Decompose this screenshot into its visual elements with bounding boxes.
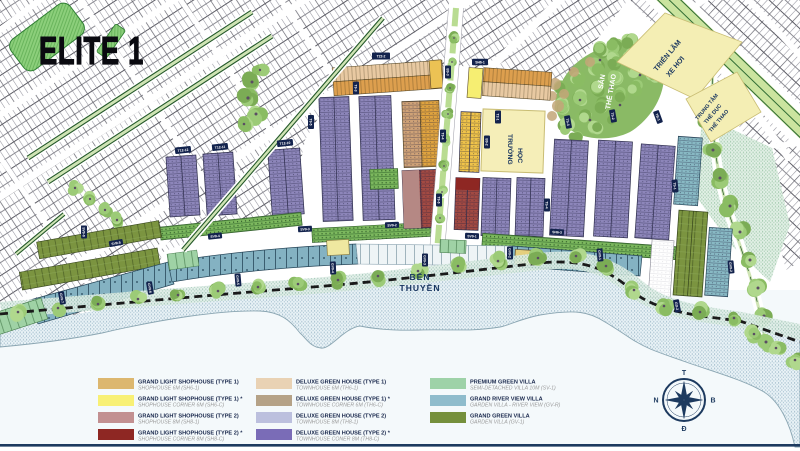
svg-text:GARDEN VILLA (GV-1): GARDEN VILLA (GV-1)	[470, 420, 525, 426]
svg-text:SEMI-DETACHED VILLA 10M (SV-1): SEMI-DETACHED VILLA 10M (SV-1)	[470, 386, 556, 392]
svg-text:SH6-3: SH6-3	[552, 230, 562, 235]
svg-text:TOWNHOUSE 8M (TH8-1): TOWNHOUSE 8M (TH8-1)	[296, 420, 358, 426]
svg-text:GV9-4: GV9-4	[330, 263, 334, 273]
svg-text:Đ: Đ	[681, 426, 686, 433]
svg-text:ELITE 1: ELITE 1	[39, 30, 144, 73]
svg-text:GARDEN VILLA - RIVER VIEW (GV-: GARDEN VILLA - RIVER VIEW (GV-R)	[470, 403, 561, 409]
svg-text:TOWNHOUSE 6M (TH6-1): TOWNHOUSE 6M (TH6-1)	[296, 386, 358, 392]
svg-text:N: N	[653, 398, 658, 405]
svg-text:T9-6: T9-6	[437, 197, 441, 204]
svg-text:SHOPHOUSE CORNER 6M (SH6-C): SHOPHOUSE CORNER 6M (SH6-C)	[138, 403, 224, 409]
svg-text:BẾN: BẾN	[410, 272, 431, 282]
svg-text:T9-4: T9-4	[441, 133, 445, 140]
svg-text:B: B	[710, 398, 715, 405]
svg-text:THUYỀN: THUYỀN	[400, 283, 441, 293]
svg-text:SHOPHOUSE 6M (SH6-1): SHOPHOUSE 6M (SH6-1)	[138, 386, 200, 392]
svg-text:TS-1: TS-1	[672, 182, 677, 190]
svg-text:GV9-3: GV9-3	[423, 255, 427, 265]
svg-text:SV9-2: SV9-2	[387, 223, 397, 227]
svg-text:SV9-1: SV9-1	[467, 234, 477, 238]
svg-text:T9-5: T9-5	[309, 119, 313, 126]
svg-text:TS-4: TS-4	[545, 201, 549, 208]
svg-text:GV9-5: GV9-5	[235, 275, 240, 285]
svg-text:SV9-3: SV9-3	[300, 227, 310, 231]
svg-text:T22-2: T22-2	[377, 54, 386, 58]
svg-text:B9-3: B9-3	[446, 68, 450, 75]
svg-text:TRƯỜNG: TRƯỜNG	[506, 134, 515, 165]
svg-text:SH6-1: SH6-1	[475, 60, 485, 64]
svg-text:GV9-2: GV9-2	[728, 262, 733, 272]
svg-text:GV9-2: GV9-2	[508, 248, 512, 258]
svg-text:SHOPHOUSE 8M (SH8-1): SHOPHOUSE 8M (SH8-1)	[138, 420, 200, 426]
svg-text:SHOPHOUSE CORNER 8M (SH8-C): SHOPHOUSE CORNER 8M (SH8-C)	[138, 437, 224, 443]
svg-text:TOWNHOUSE CORNER 6M (TH6-C): TOWNHOUSE CORNER 6M (TH6-C)	[296, 403, 383, 409]
svg-text:B9-2: B9-2	[485, 138, 489, 145]
svg-text:T: T	[682, 370, 687, 377]
svg-text:GV9-1: GV9-1	[597, 250, 602, 260]
svg-text:SV9-6: SV9-6	[82, 227, 86, 237]
svg-text:T9-3: T9-3	[354, 85, 358, 92]
svg-text:HỌC: HỌC	[516, 148, 523, 163]
svg-text:TOWNHOUSE CONER 8M (TH8-C): TOWNHOUSE CONER 8M (TH8-C)	[296, 437, 379, 443]
svg-text:T2-1: T2-1	[496, 114, 500, 121]
